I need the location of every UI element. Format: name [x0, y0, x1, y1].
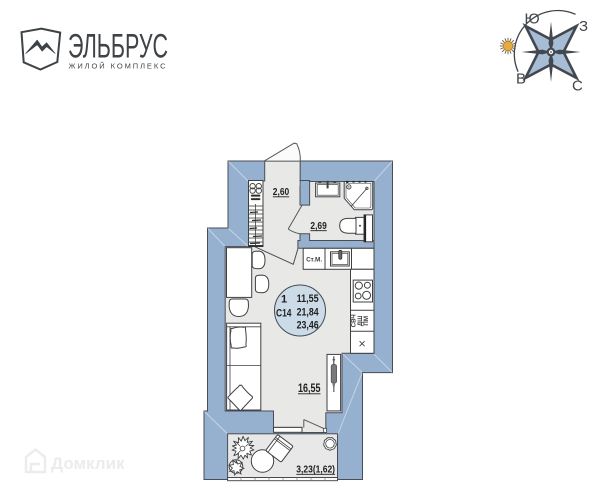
svg-text:2,69: 2,69 — [310, 221, 327, 232]
svg-text:2,60: 2,60 — [273, 187, 290, 198]
svg-text:21,84: 21,84 — [297, 307, 320, 319]
svg-text:З: З — [579, 18, 588, 35]
svg-text:11,55: 11,55 — [297, 293, 319, 305]
svg-text:С: С — [572, 78, 583, 95]
svg-text:Ю: Ю — [525, 11, 540, 28]
svg-text:16,55: 16,55 — [298, 381, 321, 395]
svg-text:23,46: 23,46 — [297, 320, 319, 332]
svg-text:ПМ: ПМ — [363, 316, 370, 326]
svg-text:1: 1 — [281, 294, 287, 306]
svg-text:Домклик: Домклик — [51, 454, 125, 473]
svg-text:В: В — [516, 71, 526, 88]
svg-text:Ст.М.: Ст.М. — [306, 257, 322, 264]
svg-text:3,23(1,62): 3,23(1,62) — [296, 464, 335, 476]
svg-text:С14: С14 — [276, 308, 292, 320]
svg-text:ЭЛЬБРУС: ЭЛЬБРУС — [68, 28, 168, 66]
